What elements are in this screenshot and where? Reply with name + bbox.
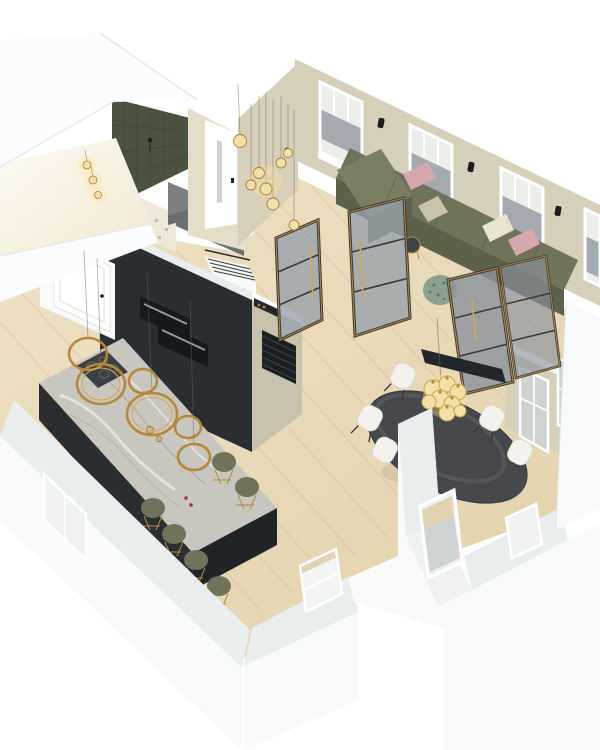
door-handle [231, 178, 234, 183]
corner-window [420, 490, 462, 578]
window-4 [585, 209, 600, 286]
door-glazing-slot [217, 140, 222, 203]
floorplan-render [0, 0, 600, 750]
shower-fixture [148, 138, 152, 142]
glass-door-left [276, 220, 322, 340]
glass-door-right [349, 198, 410, 336]
entry-door-handle [100, 294, 104, 298]
apartment-3d-render [0, 0, 600, 750]
roller-blind [585, 236, 600, 278]
red-candle [189, 503, 193, 507]
bay-window-1 [520, 368, 548, 452]
red-candle [184, 496, 188, 500]
